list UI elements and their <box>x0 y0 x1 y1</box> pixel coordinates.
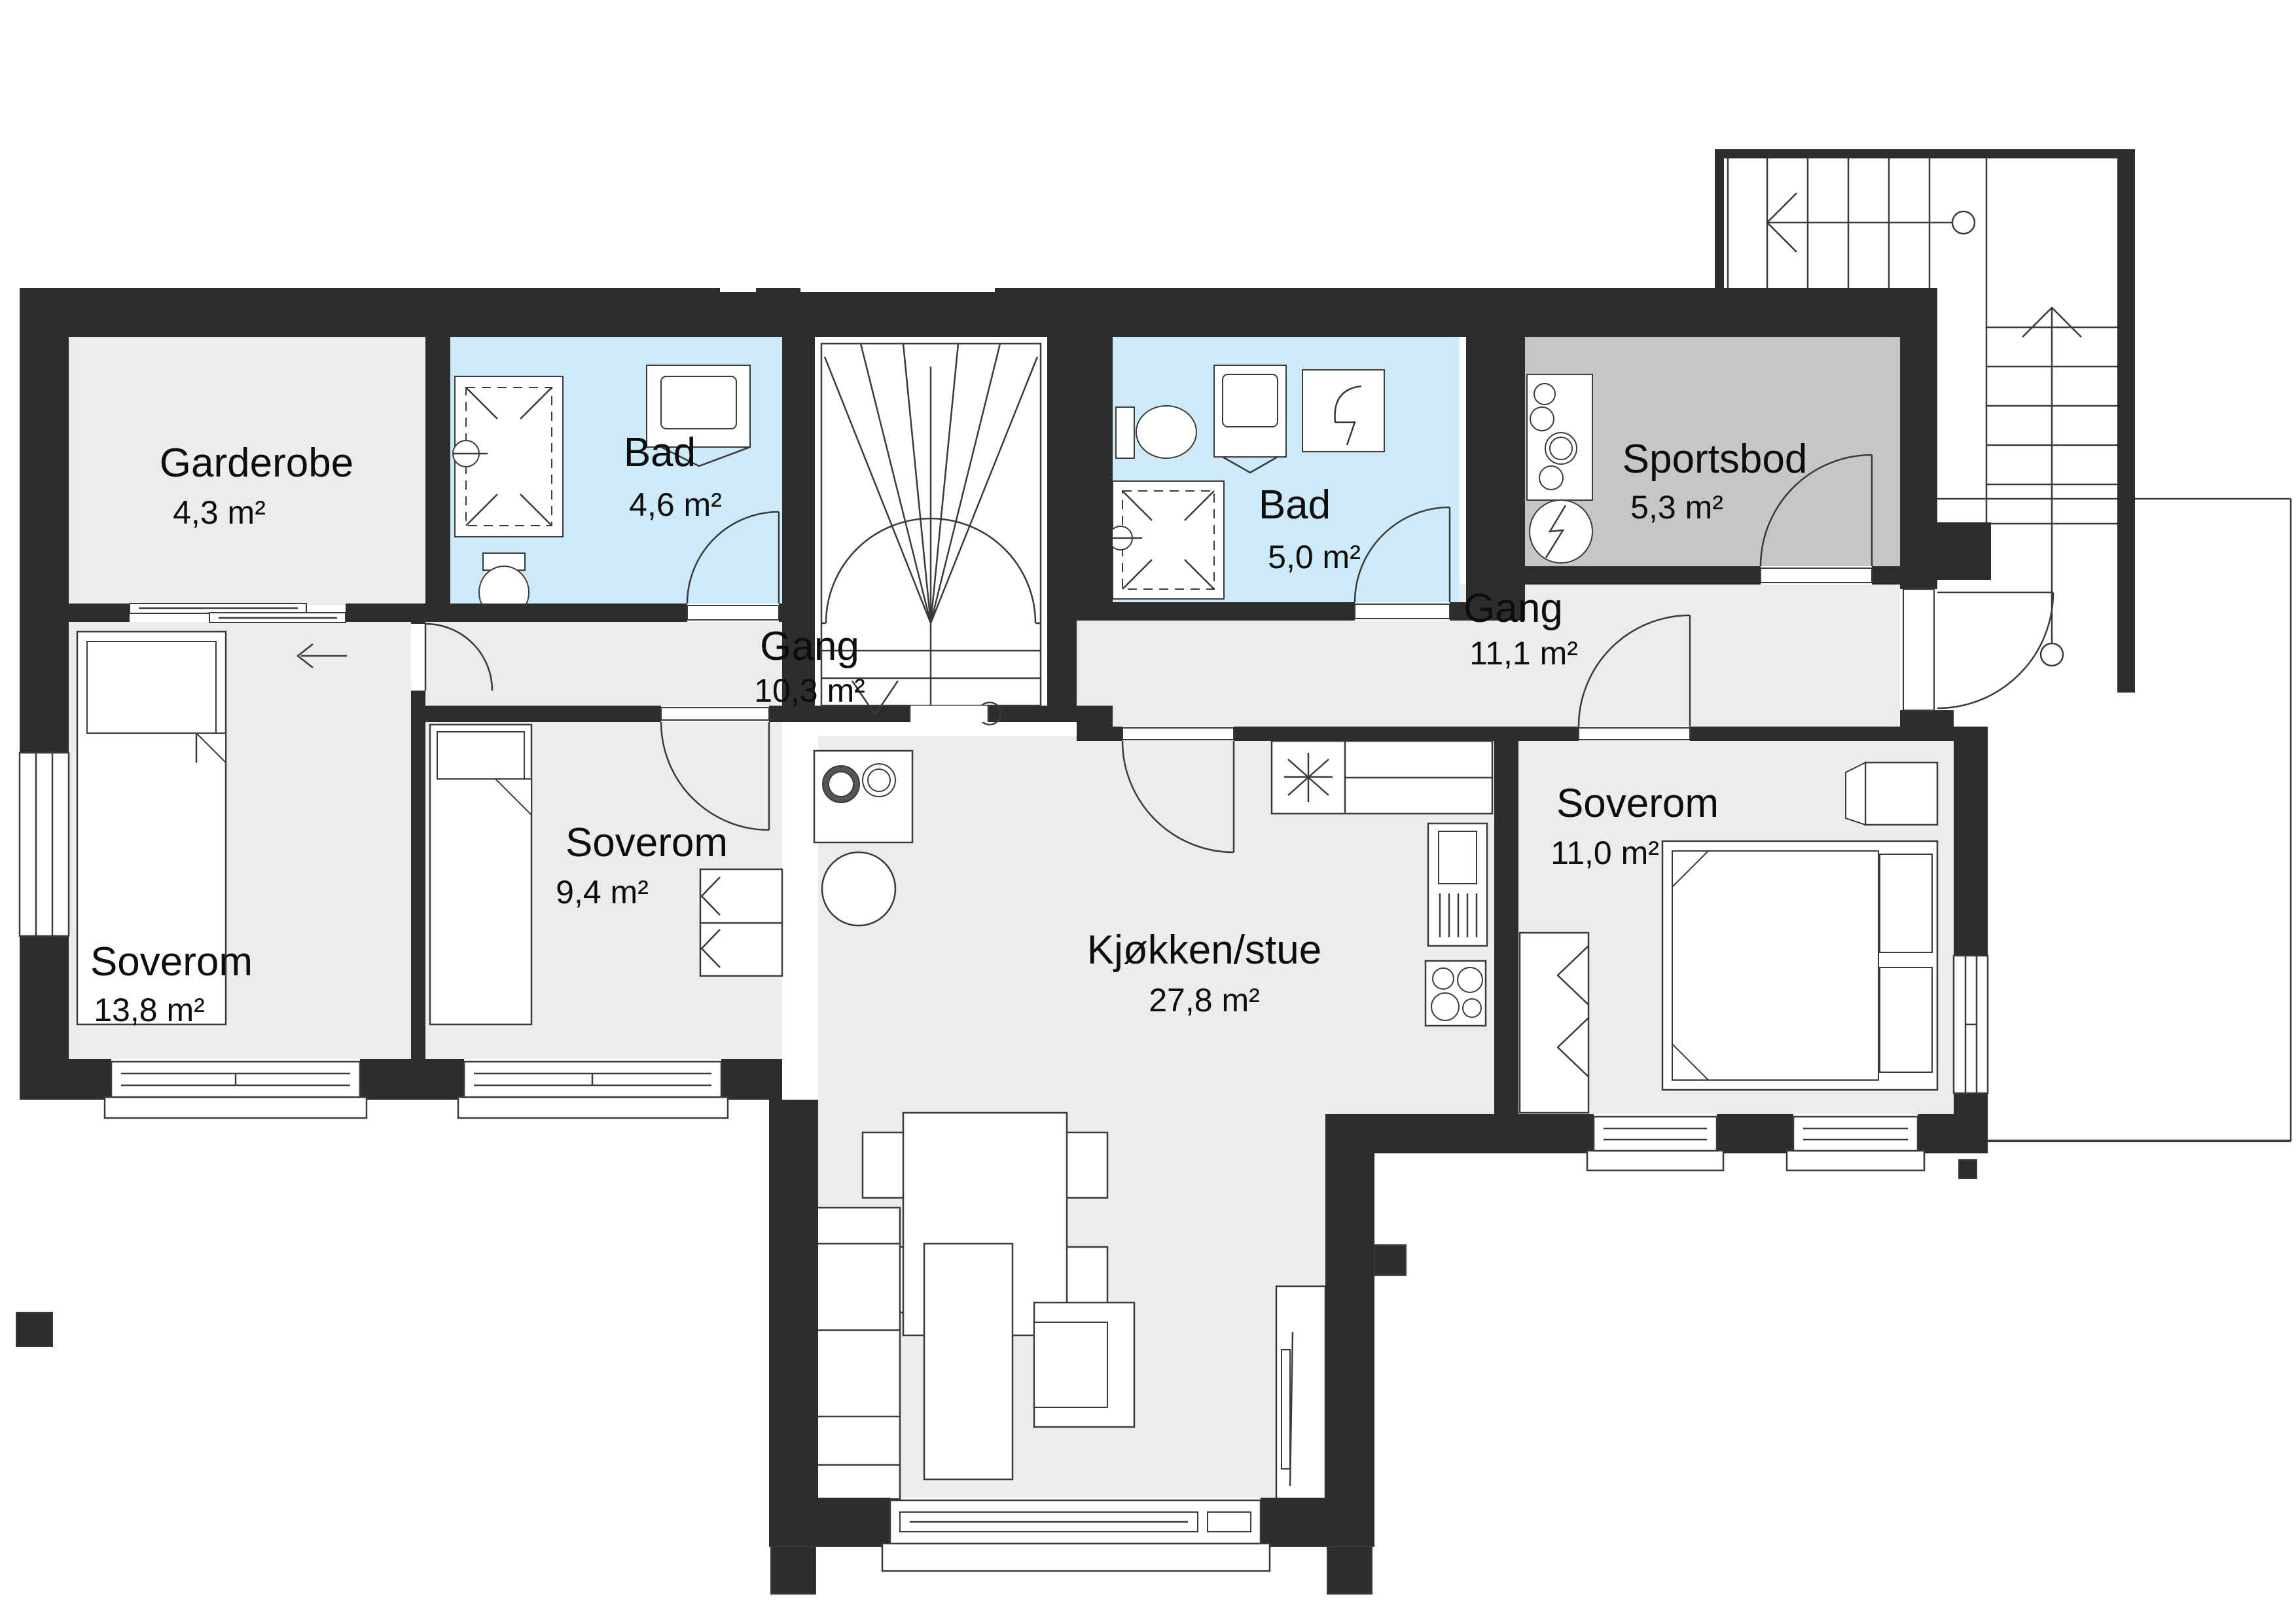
label-garderobe: Garderobe <box>160 441 353 486</box>
coffee-table <box>924 1244 1013 1479</box>
post <box>16 1312 52 1346</box>
floor-plan-drawing: Garderobe 4,3 m² Bad 4,6 m² Gang 10,3 m²… <box>0 0 2296 1624</box>
toilet-bowl <box>1136 406 1196 458</box>
wall-sportsbod-bottom-a <box>1525 566 1761 585</box>
wall-bad2-bottom-a <box>1113 602 1355 621</box>
window-soverom1-south <box>105 1062 367 1118</box>
label-bad2: Bad <box>1259 482 1331 528</box>
toilet-tank <box>1116 407 1134 458</box>
wall-soverom1-divider-b <box>411 691 425 1059</box>
window-soverom3-south-2 <box>1787 1117 1924 1170</box>
post <box>1959 1160 1977 1178</box>
wardrobe <box>1520 933 1588 1113</box>
wall-kitchen-soverom3 <box>1494 727 1518 1114</box>
post-corner <box>771 1547 816 1594</box>
wall-garderobe-bad <box>425 337 450 605</box>
label-sportsbod: Sportsbod <box>1623 437 1808 482</box>
wall-kitchen-top-a <box>1113 727 1122 741</box>
label-gang2-a: 11,1 m² <box>1469 635 1578 672</box>
wall-bottom-right-b <box>1717 1114 1793 1153</box>
wall-gang1-bottom-c <box>988 706 1077 722</box>
label-gang1-a: 10,3 m² <box>754 672 865 709</box>
label-soverom3-a: 11,0 m² <box>1551 835 1659 871</box>
label-bad1: Bad <box>624 430 696 475</box>
sliding-glass-door-living <box>882 1500 1270 1571</box>
wall-living-right <box>1325 1114 1374 1547</box>
chair <box>1066 1132 1107 1198</box>
label-bad1-a: 4,6 m² <box>629 486 722 523</box>
label-bad2-a: 5,0 m² <box>1268 539 1361 575</box>
round-table <box>822 852 895 926</box>
floor-plan: Garderobe 4,3 m² Bad 4,6 m² Gang 10,3 m²… <box>0 0 2296 1624</box>
sliding-door-garderobe <box>130 604 346 623</box>
wall-living-bottom-a <box>769 1498 890 1547</box>
wall-living-bottom-b <box>1261 1498 1374 1547</box>
wall-garderobe-bottom-a <box>69 604 130 622</box>
label-soverom1: Soverom <box>90 939 253 984</box>
label-soverom3: Soverom <box>1556 781 1719 826</box>
wall-garderobe-bottom-b <box>346 604 687 622</box>
wall-left-upper <box>20 288 69 753</box>
label-soverom1-a: 13,8 m² <box>94 992 205 1028</box>
water-heater-icon <box>1530 500 1592 563</box>
wall-bottom-left-c <box>721 1059 782 1100</box>
wall-bottom-left-a <box>20 1059 111 1100</box>
label-kjokken: Kjøkken/stue <box>1087 928 1321 973</box>
floor-gang-1 <box>425 622 782 706</box>
label-soverom2: Soverom <box>565 820 728 865</box>
wall-bad2-left <box>1077 337 1113 621</box>
pillow <box>1880 967 1932 1072</box>
post <box>1374 1245 1406 1275</box>
tv <box>1282 1350 1290 1469</box>
wall-bottom-right-c <box>1918 1114 1988 1153</box>
wall-gang-jog <box>1077 706 1113 741</box>
wall-soverom3-top-a <box>1518 727 1579 741</box>
stair-direction-arrow-down-run <box>1767 193 1975 252</box>
post-corner <box>1327 1547 1372 1594</box>
window-soverom3-east <box>1954 956 1988 1093</box>
stair-opening <box>910 706 988 722</box>
label-garderobe-a: 4,3 m² <box>173 494 266 531</box>
window-soverom3-south-1 <box>1587 1117 1723 1170</box>
wall-right-lower-a <box>1954 727 1988 956</box>
wall-living-left <box>769 1100 818 1547</box>
label-kjokken-a: 27,8 m² <box>1149 982 1260 1019</box>
wall-kitchen-top-b <box>1234 727 1518 741</box>
wall-gang1-bottom-a <box>411 706 661 722</box>
wall-soverom3-top-b <box>1690 727 1988 741</box>
wall-entry-stub <box>1937 522 1991 580</box>
sofa <box>814 1208 900 1499</box>
label-sportsbod-a: 5,3 m² <box>1630 489 1723 526</box>
window-soverom2-south <box>458 1062 728 1118</box>
top-wall-notch <box>800 281 995 292</box>
top-wall-notch <box>720 283 756 292</box>
terrace-outline <box>1937 499 2291 1141</box>
label-gang2: Gang <box>1463 586 1563 631</box>
pillow <box>1880 854 1932 952</box>
wall-bottom-left-b <box>360 1059 464 1100</box>
wall-sportsbod-bottom-b <box>1872 566 1937 585</box>
window-left-wall <box>20 753 69 936</box>
wall-bottom-right-a <box>1374 1114 1594 1153</box>
wall-top <box>20 288 1937 337</box>
wall-bad2-sportsbod <box>1466 337 1525 621</box>
sportsbod-fixtures <box>1527 374 1592 563</box>
chair <box>863 1132 905 1198</box>
door-entrance <box>1900 589 2053 710</box>
wall-soverom1-divider-a <box>411 622 425 624</box>
label-soverom2-a: 9,4 m² <box>556 874 649 911</box>
wall-stair-right <box>1047 337 1077 722</box>
nightstand <box>1865 763 1937 825</box>
wall-right-upper-a <box>1900 288 1937 589</box>
label-gang1: Gang <box>760 624 859 669</box>
washer <box>1302 370 1384 452</box>
